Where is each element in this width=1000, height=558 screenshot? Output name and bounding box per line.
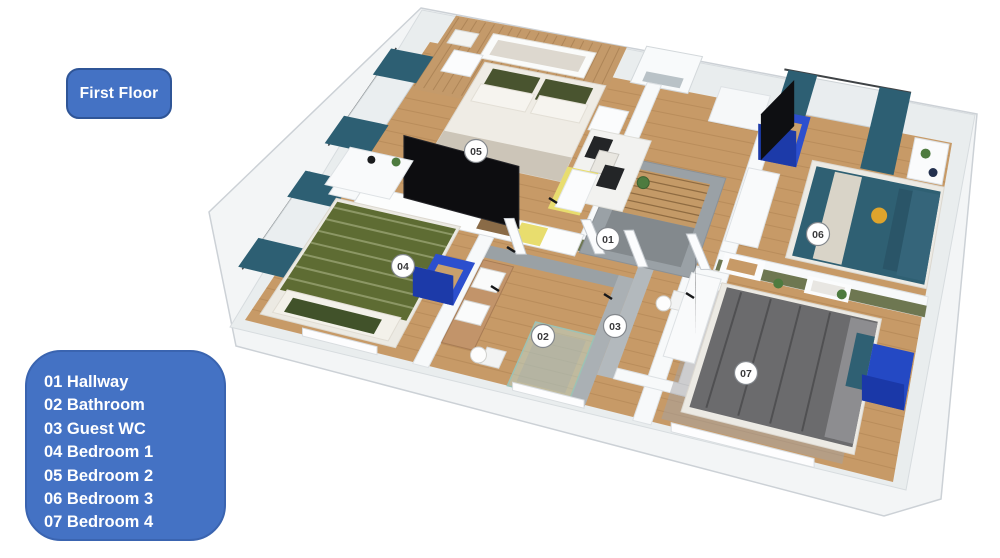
legend-item: 07 Bedroom 4 bbox=[44, 511, 224, 534]
legend-item: 03 Guest WC bbox=[44, 418, 224, 441]
room-marker: 07 bbox=[735, 362, 758, 385]
room-marker-label: 05 bbox=[470, 146, 482, 158]
legend-item: 01 Hallway bbox=[44, 371, 224, 394]
room-marker: 02 bbox=[532, 325, 555, 348]
room-marker-label: 01 bbox=[602, 234, 614, 246]
floor-plan-page: First Floor 01020304050607 01 Hallway 02… bbox=[0, 0, 1000, 558]
room-marker-label: 04 bbox=[397, 261, 409, 273]
legend-item: 06 Bedroom 3 bbox=[44, 488, 224, 511]
room-marker: 05 bbox=[465, 140, 488, 163]
legend-item: 04 Bedroom 1 bbox=[44, 441, 224, 464]
room-marker-label: 06 bbox=[812, 229, 824, 241]
room-marker: 01 bbox=[597, 228, 620, 251]
room-marker-label: 03 bbox=[609, 321, 621, 333]
room-marker: 04 bbox=[392, 255, 415, 278]
room-legend: 01 Hallway 02 Bathroom 03 Guest WC 04 Be… bbox=[25, 350, 226, 541]
room-marker: 06 bbox=[807, 223, 830, 246]
room-marker-label: 07 bbox=[740, 368, 752, 380]
room-marker: 03 bbox=[604, 315, 627, 338]
legend-item: 02 Bathroom bbox=[44, 394, 224, 417]
legend-item: 05 Bedroom 2 bbox=[44, 465, 224, 488]
room-marker-label: 02 bbox=[537, 331, 549, 343]
room-legend-list: 01 Hallway 02 Bathroom 03 Guest WC 04 Be… bbox=[44, 371, 224, 535]
